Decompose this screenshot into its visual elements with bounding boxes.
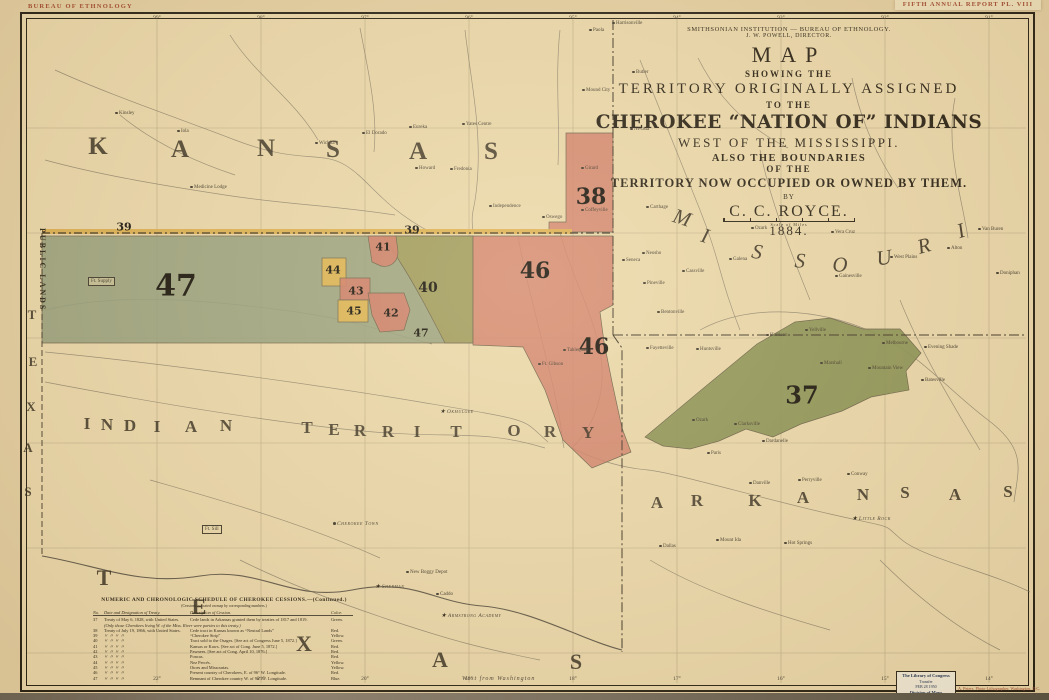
town-label: ★Okmulgee (440, 410, 474, 415)
town-dot-icon (798, 479, 801, 482)
town-dot-icon (643, 282, 646, 285)
meridian-label-bottom: 15° (881, 676, 889, 682)
town-dot-icon (696, 348, 699, 351)
town-dot-icon (333, 522, 336, 525)
meridian-label-top: 95° (569, 15, 577, 21)
schedule-header: Date and Designation of Treaty. (104, 610, 190, 616)
state-name-letter: A (797, 488, 809, 508)
meridian-label-bottom: 18° (569, 676, 577, 682)
schedule-cell-no: 47 (93, 676, 104, 681)
town-dot-icon (489, 205, 492, 208)
town-dot-icon (659, 545, 662, 548)
title-now: TERRITORY NOW OCCUPIED OR OWNED BY THEM. (566, 176, 1012, 191)
town-label: Neosho (642, 251, 661, 256)
town-label: Fayetteville (646, 346, 674, 351)
meridian-label-top: 96° (465, 15, 473, 21)
sheet-edge-shadow (0, 693, 1049, 700)
town-label: West Plains (890, 255, 917, 260)
town-dot-icon (766, 334, 769, 337)
schedule-header: Color. (331, 610, 353, 616)
town-dot-icon (450, 168, 453, 171)
region-number-44: 44 (325, 264, 340, 277)
state-name-letter: R (354, 421, 366, 441)
state-name-letter: I (414, 422, 421, 442)
schedule-cell-color: Blue. (331, 676, 353, 681)
cession-schedule-table: NUMERIC AND CHRONOLOGIC SCHEDULE OF CHER… (93, 597, 355, 681)
title-director: J. W. POWELL, DIRECTOR. (566, 33, 1012, 39)
town-label: Tahlequah (563, 348, 588, 353)
state-name-letter: O (507, 421, 520, 441)
title-west: WEST OF THE MISSISSIPPI. (566, 135, 1012, 151)
region-number-46: 46 (579, 334, 610, 360)
state-name-letter: R (544, 422, 556, 442)
lithographer-imprint: A. Peters, Photo-Lithographer, Washingto… (958, 686, 1040, 691)
town-dot-icon (190, 186, 193, 189)
state-name-letter: S (484, 138, 498, 166)
town-label: Galena (729, 257, 747, 262)
town-star-icon: ★ (375, 584, 381, 590)
title-territory: TERRITORY ORIGINALLY ASSIGNED (566, 81, 1012, 98)
state-name-letter: S (24, 484, 31, 500)
town-label: Oswego (542, 215, 562, 220)
region-number-39: 39 (404, 224, 419, 237)
town-label: Ft. Sill (202, 525, 222, 534)
state-name-letter: S (1003, 482, 1012, 502)
town-label: Fredonia (450, 167, 472, 172)
town-label: Iola (177, 129, 189, 134)
town-dot-icon (716, 539, 719, 542)
town-dot-icon (947, 247, 950, 250)
state-name-letter: N (101, 415, 113, 435)
meridian-label-top: 98° (257, 15, 265, 21)
town-dot-icon (820, 362, 823, 365)
meridian-label-top: 92° (881, 15, 889, 21)
town-label: Kinsley (115, 111, 135, 116)
state-name-letter: A (409, 138, 427, 166)
schedule-header: No. (93, 610, 104, 616)
town-dot-icon (734, 423, 737, 426)
west-from-washington-note: West from Washington (462, 676, 535, 682)
schedule-cell-treaty: 〃 〃 〃 〃 (104, 676, 190, 681)
town-dot-icon (890, 256, 893, 259)
town-dot-icon (436, 593, 439, 596)
schedule-grid: No.Date and Designation of Treaty.Descri… (93, 610, 355, 681)
state-name-letter: A (432, 647, 448, 673)
town-label: Bentonville (657, 310, 684, 315)
state-name-letter: I (154, 417, 161, 437)
state-name-letter: N (220, 416, 232, 436)
town-label: Mountain View (868, 366, 903, 371)
town-label: Ft. Gibson (538, 362, 563, 367)
town-dot-icon (622, 259, 625, 262)
town-dot-icon (406, 571, 409, 574)
town-label: Evening Shade (924, 345, 958, 350)
town-label: Yates Centre (462, 122, 491, 127)
meridian-label-top: 97° (361, 15, 369, 21)
town-dot-icon (315, 142, 318, 145)
meridian-label-bottom: 16° (777, 676, 785, 682)
town-label: Dallas (659, 544, 676, 549)
town-dot-icon (692, 419, 695, 422)
town-label: Medicine Lodge (190, 185, 227, 190)
title-tothe: TO THE (566, 100, 1012, 110)
town-label: Gainesville (835, 274, 862, 279)
meridian-label-bottom: 17° (673, 676, 681, 682)
title-map: MAP (566, 42, 1012, 68)
town-dot-icon (924, 346, 927, 349)
state-name-letter: A (171, 136, 189, 164)
state-name-letter: R (382, 422, 394, 442)
town-label: Mount Ida (716, 538, 741, 543)
town-label: Dardanelle (762, 439, 788, 444)
town-label: Conway (847, 472, 868, 477)
town-dot-icon (177, 130, 180, 133)
region-number-47: 47 (155, 269, 197, 304)
state-name-letter: T (97, 565, 112, 591)
town-dot-icon (362, 132, 365, 135)
town-dot-icon (835, 275, 838, 278)
town-dot-icon (409, 126, 412, 129)
state-name-letter: K (88, 133, 107, 161)
meridian-label-top: 91° (985, 15, 993, 21)
state-name-letter: A (651, 493, 663, 513)
map-sheet: BUREAU OF ETHNOLOGY FIFTH ANNUAL REPORT … (0, 0, 1049, 700)
state-name-letter: T (450, 422, 461, 442)
town-dot-icon (882, 342, 885, 345)
schedule-subtitle: (Cessions indicated on map by correspond… (93, 604, 355, 608)
state-name-letter: K (748, 491, 761, 511)
town-label: Doniphan (996, 271, 1020, 276)
meridian-label-bottom: 14° (985, 676, 993, 682)
town-label: New Boggy Depot (406, 570, 448, 575)
state-name-letter: R (691, 491, 703, 511)
town-label: ★Sherman (375, 585, 404, 590)
meridian-label-bottom: 20° (361, 676, 369, 682)
town-label: Perryville (798, 478, 822, 483)
town-dot-icon (762, 440, 765, 443)
region-number-42: 42 (383, 307, 398, 320)
meridian-label-top: 99° (153, 15, 161, 21)
town-dot-icon (921, 379, 924, 382)
title-showing: SHOWING THE (566, 69, 1012, 79)
region-number-41: 41 (375, 241, 390, 254)
town-star-icon: ★ (441, 613, 447, 619)
town-dot-icon (784, 542, 787, 545)
title-cherokee: CHEROKEE “NATION OF” INDIANS (566, 112, 1012, 133)
town-label: Paris (707, 451, 721, 456)
state-name-letter: X (26, 399, 35, 415)
town-star-icon: ★ (440, 409, 446, 415)
state-name-letter: S (794, 248, 806, 274)
town-label: Pineville (643, 281, 665, 286)
scale-bar-caption: Scale of Miles (723, 222, 855, 227)
town-dot-icon (542, 216, 545, 219)
state-name-letter: N (857, 485, 869, 505)
town-label: Ft. Supply (88, 277, 115, 286)
town-label: Clarksville (734, 422, 760, 427)
public-lands-label: PUBLIC LANDS (38, 228, 47, 311)
schedule-title: NUMERIC AND CHRONOLOGIC SCHEDULE OF CHER… (93, 597, 355, 603)
region-number-46: 46 (520, 258, 551, 284)
town-label: Cassville (682, 269, 704, 274)
meridian-label-top: 93° (777, 15, 785, 21)
town-label: Marshall (820, 361, 842, 366)
town-dot-icon (657, 311, 660, 314)
town-label: Eureka (409, 125, 427, 130)
town-label: ★Little Rock (852, 517, 891, 522)
region-number-47: 47 (413, 327, 428, 340)
town-dot-icon (868, 367, 871, 370)
town-label: Batesville (921, 378, 945, 383)
town-dot-icon (847, 473, 850, 476)
map-title-block: SMITHSONIAN INSTITUTION — BUREAU OF ETHN… (566, 26, 1012, 239)
town-dot-icon (415, 167, 418, 170)
town-label: Danville (749, 481, 770, 486)
town-label: El Dorado (362, 131, 387, 136)
town-star-icon: ★ (852, 516, 858, 522)
scale-bar: Scale of Miles (723, 218, 855, 227)
state-name-letter: E (328, 420, 339, 440)
town-label: Harrison (766, 333, 788, 338)
town-label: Melbourne (882, 341, 908, 346)
title-ofthe: OF THE (566, 164, 1012, 174)
state-name-letter: Y (582, 423, 594, 443)
meridian-label-top: 94° (673, 15, 681, 21)
stamp-line-1: The Library of Congress (897, 673, 955, 679)
region-number-43: 43 (348, 285, 363, 298)
town-label: Huntsville (696, 347, 721, 352)
town-label: ★Armstrong Academy (441, 614, 501, 619)
schedule-cell-description: Remnant of Cherokee country W. of 96° W.… (190, 676, 331, 681)
town-label: Yellville (805, 328, 826, 333)
state-name-letter: D (124, 416, 136, 436)
state-name-letter: S (900, 483, 909, 503)
town-dot-icon (563, 349, 566, 352)
region-number-40: 40 (418, 280, 437, 296)
town-label: Ozark (692, 418, 708, 423)
state-name-letter: N (257, 135, 275, 163)
town-label: Cherokee Town (333, 522, 379, 527)
title-by: BY (566, 193, 1012, 201)
state-name-letter: T (28, 307, 37, 323)
town-label: Howard (415, 166, 435, 171)
schedule-header: Description of Cession. (190, 610, 331, 616)
region-number-39: 39 (116, 221, 131, 234)
state-name-letter: A (949, 485, 961, 505)
town-dot-icon (646, 347, 649, 350)
region-number-45: 45 (346, 305, 361, 318)
town-label: Independence (489, 204, 521, 209)
town-label: Hot Springs (784, 541, 812, 546)
state-name-letter: I (84, 414, 91, 434)
town-dot-icon (538, 363, 541, 366)
state-name-letter: S (570, 649, 582, 675)
town-label: Alton (947, 246, 962, 251)
region-number-37: 37 (785, 381, 818, 410)
title-also: ALSO THE BOUNDARIES (566, 153, 1012, 164)
town-dot-icon (642, 252, 645, 255)
title-institution: SMITHSONIAN INSTITUTION — BUREAU OF ETHN… (566, 26, 1012, 33)
town-dot-icon (115, 112, 118, 115)
town-dot-icon (707, 452, 710, 455)
town-dot-icon (612, 22, 615, 25)
town-label: Seneca (622, 258, 640, 263)
town-label: Caddo (436, 592, 453, 597)
state-name-letter: T (301, 418, 312, 438)
town-dot-icon (682, 270, 685, 273)
town-label: Wichita (315, 141, 335, 146)
state-name-letter: E (29, 354, 38, 370)
town-dot-icon (462, 123, 465, 126)
town-dot-icon (805, 329, 808, 332)
town-dot-icon (729, 258, 732, 261)
state-name-letter: S (750, 239, 765, 265)
town-dot-icon (996, 272, 999, 275)
state-name-letter: A (185, 417, 197, 437)
town-dot-icon (749, 482, 752, 485)
state-name-letter: A (23, 440, 32, 456)
